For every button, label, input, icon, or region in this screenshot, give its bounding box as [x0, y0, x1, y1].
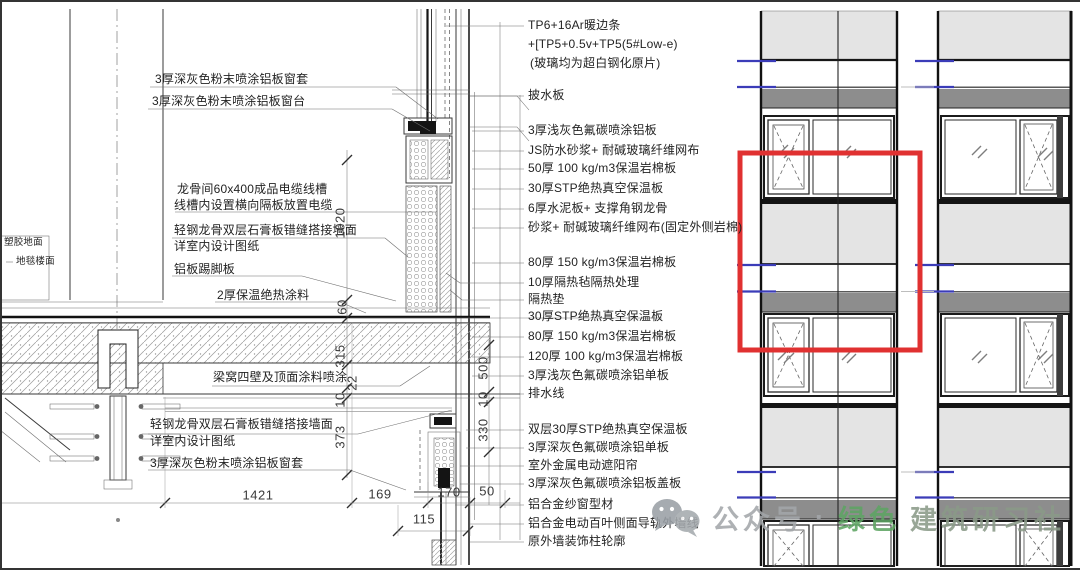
interior-wall-lines [70, 9, 163, 334]
lower-window-section [414, 414, 470, 565]
window-row-3 [764, 521, 1069, 566]
window-row-2 [764, 314, 1069, 396]
facade-elevation [737, 11, 1072, 566]
curtain-wall-section [392, 9, 529, 565]
interior-finish-box [0, 236, 49, 300]
window-row-1 [764, 116, 1069, 198]
screenshot-root: TP6+16Ar暖边条+[TP5+0.5v+TP5(5#Low-e)(玻璃均为超… [0, 0, 1080, 570]
leader-lines [148, 26, 524, 542]
floor-slab [0, 302, 662, 412]
construction-detail-drawing [0, 0, 1080, 570]
